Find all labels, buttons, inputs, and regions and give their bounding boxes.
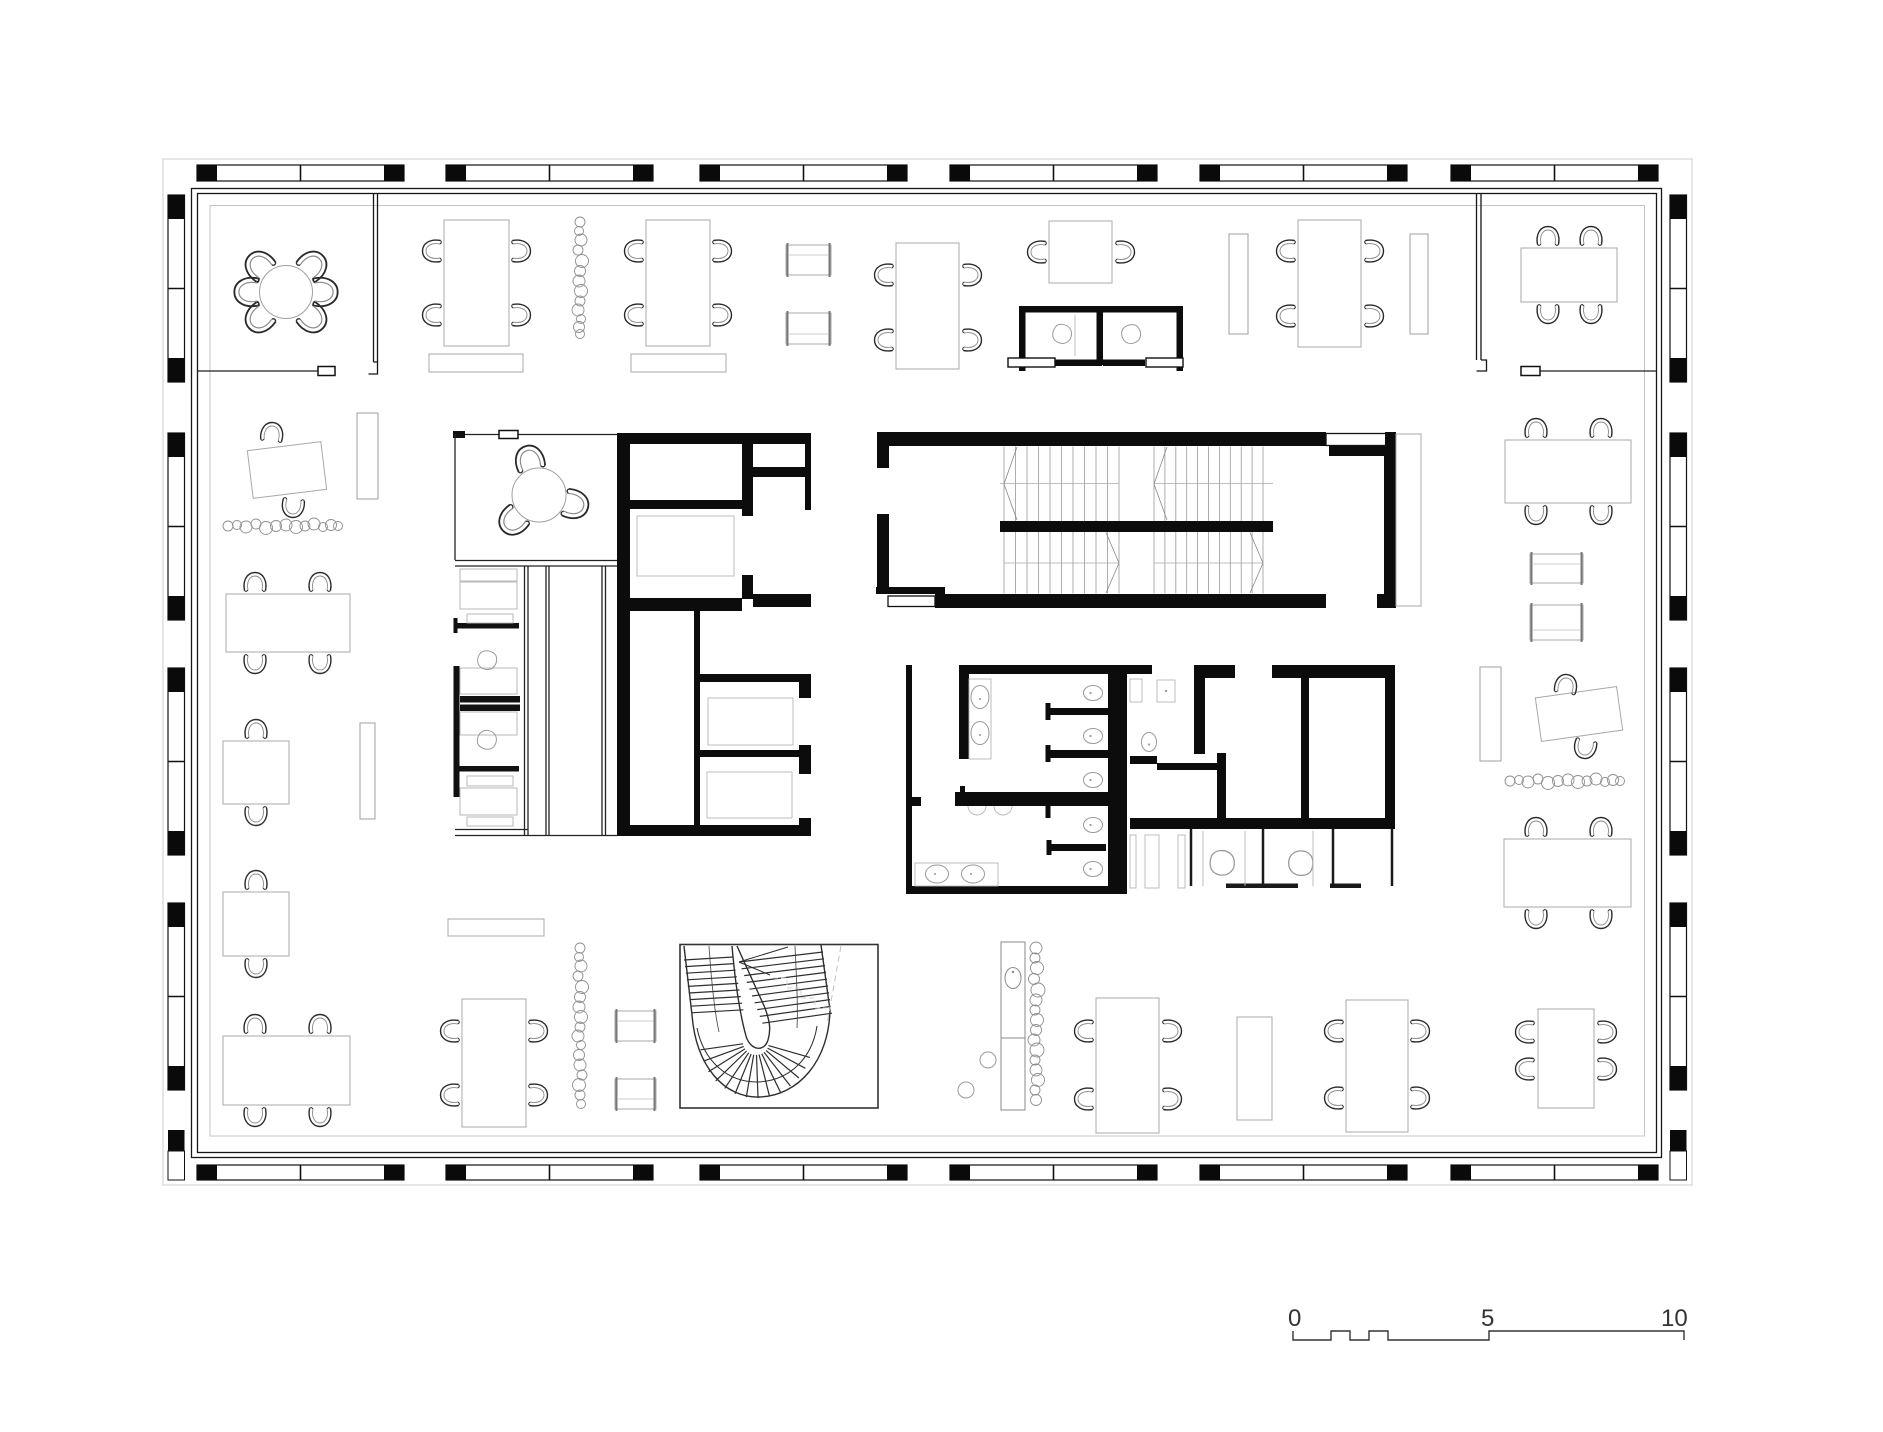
svg-text:5: 5 <box>1481 1305 1494 1332</box>
svg-text:10: 10 <box>1661 1305 1688 1332</box>
svg-text:0: 0 <box>1288 1305 1301 1332</box>
